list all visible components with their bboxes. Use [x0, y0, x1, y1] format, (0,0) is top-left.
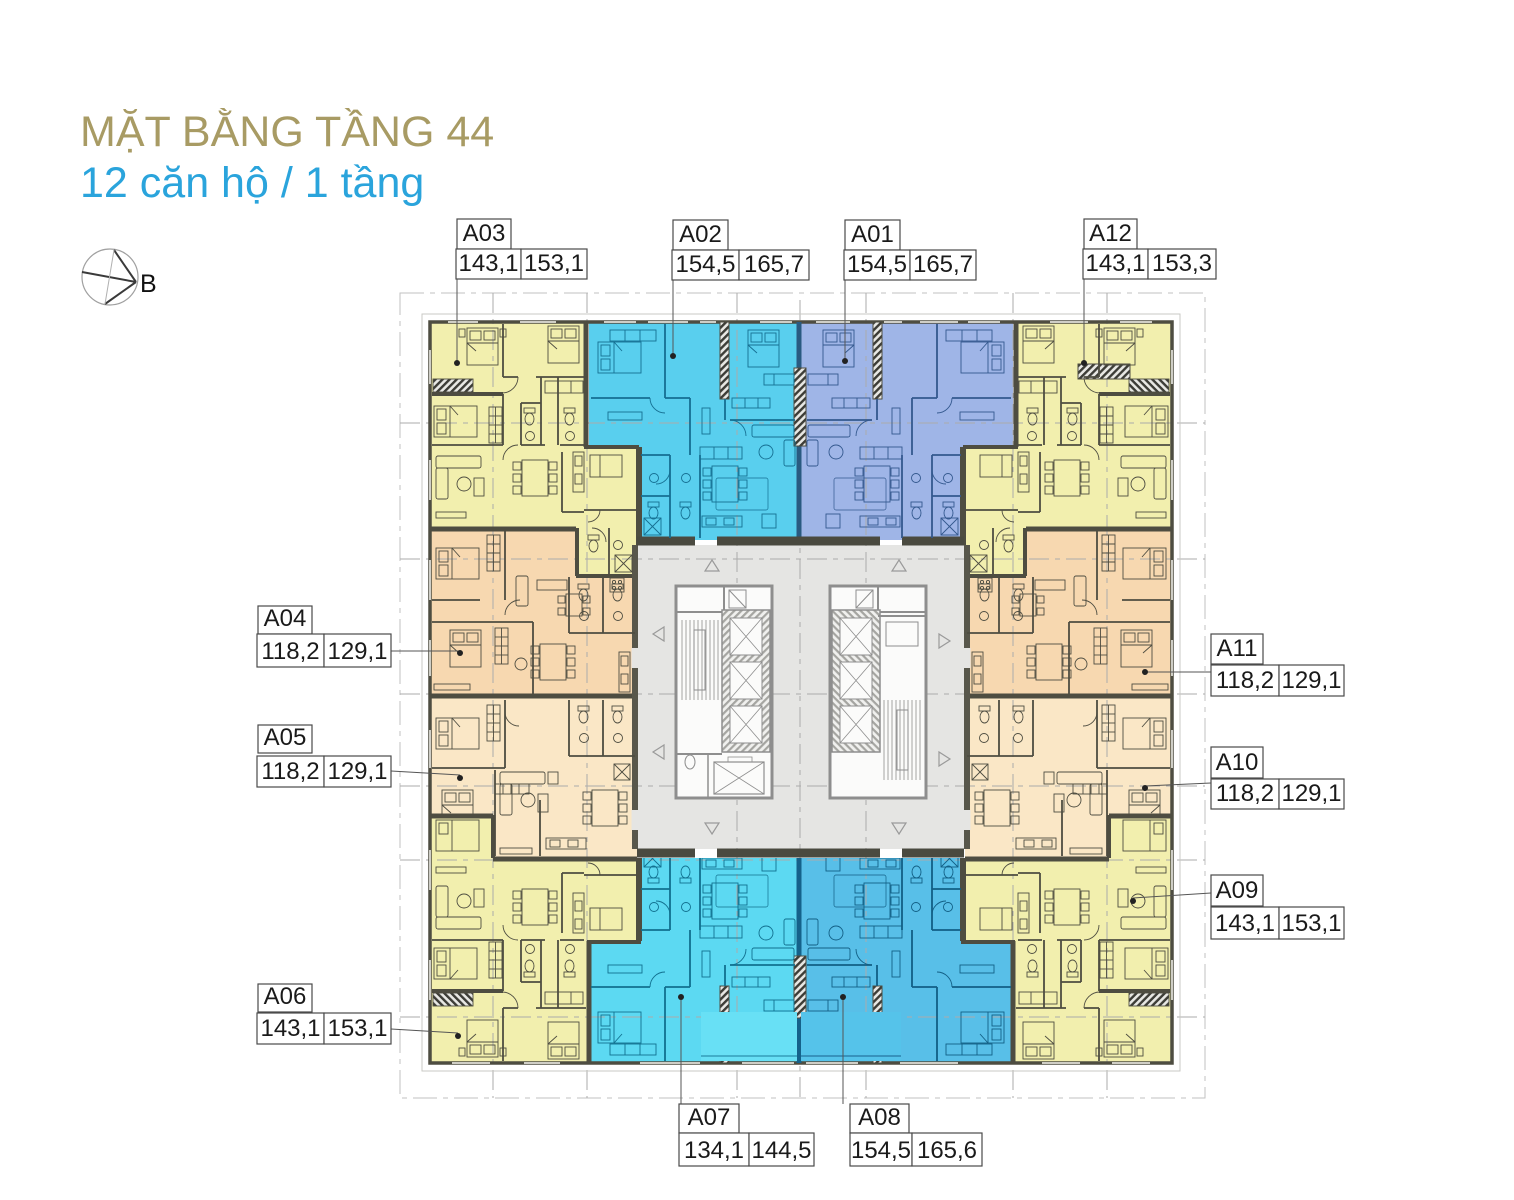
svg-text:129,1: 129,1	[327, 758, 387, 785]
svg-text:165,7: 165,7	[744, 251, 804, 278]
svg-text:A09: A09	[1216, 877, 1259, 904]
svg-text:A05: A05	[264, 724, 307, 751]
svg-text:A12: A12	[1089, 220, 1132, 247]
svg-text:153,1: 153,1	[1281, 910, 1341, 937]
svg-text:154,5: 154,5	[675, 251, 735, 278]
svg-text:143,1: 143,1	[458, 250, 518, 277]
svg-text:A07: A07	[688, 1104, 731, 1131]
svg-text:165,7: 165,7	[913, 251, 973, 278]
svg-text:118,2: 118,2	[261, 638, 319, 665]
svg-text:153,1: 153,1	[524, 250, 584, 277]
svg-text:B: B	[140, 270, 157, 298]
svg-text:118,2: 118,2	[1216, 667, 1274, 694]
svg-text:153,3: 153,3	[1152, 250, 1212, 277]
svg-text:143,1: 143,1	[1215, 910, 1275, 937]
svg-text:129,1: 129,1	[327, 638, 387, 665]
svg-text:143,1: 143,1	[260, 1015, 320, 1042]
svg-text:129,1: 129,1	[1281, 780, 1341, 807]
svg-text:A01: A01	[851, 221, 894, 248]
svg-text:12 căn hộ / 1 tầng: 12 căn hộ / 1 tầng	[80, 159, 424, 207]
svg-text:MẶT BẰNG TẦNG 44: MẶT BẰNG TẦNG 44	[80, 108, 494, 156]
svg-text:153,1: 153,1	[327, 1015, 387, 1042]
svg-text:A10: A10	[1216, 749, 1259, 776]
svg-text:A06: A06	[264, 983, 307, 1010]
svg-text:A03: A03	[463, 220, 506, 247]
svg-text:A04: A04	[264, 605, 307, 632]
svg-text:134,1: 134,1	[684, 1137, 744, 1164]
svg-text:A02: A02	[679, 221, 722, 248]
svg-text:154,5: 154,5	[847, 251, 907, 278]
svg-text:165,6: 165,6	[917, 1137, 977, 1164]
svg-text:A08: A08	[858, 1104, 901, 1131]
svg-text:118,2: 118,2	[261, 758, 319, 785]
svg-text:118,2: 118,2	[1216, 780, 1274, 807]
svg-text:A11: A11	[1217, 635, 1258, 662]
svg-text:143,1: 143,1	[1085, 250, 1145, 277]
svg-text:144,5: 144,5	[751, 1137, 811, 1164]
svg-text:154,5: 154,5	[851, 1137, 911, 1164]
svg-text:129,1: 129,1	[1281, 667, 1341, 694]
